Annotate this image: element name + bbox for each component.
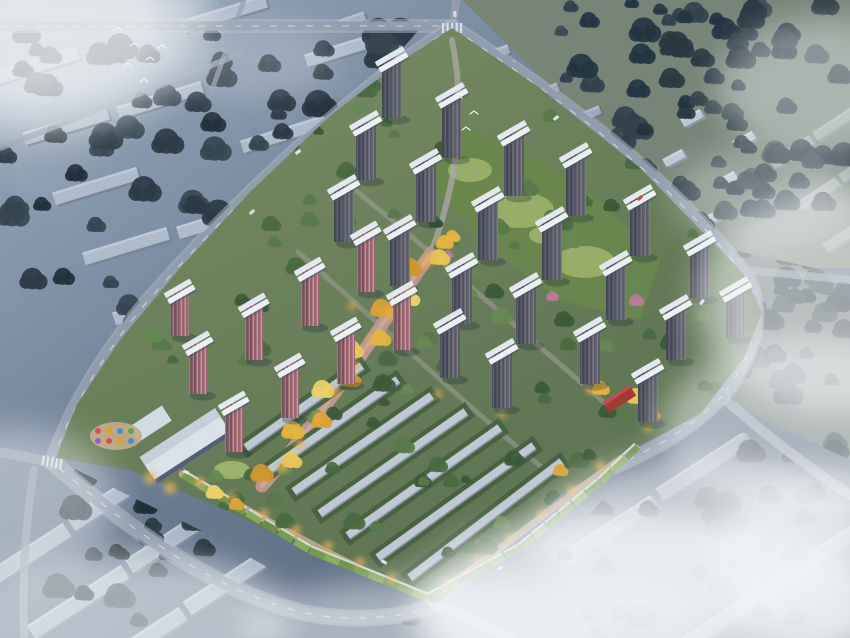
aerial-masterplan-rendering (0, 0, 850, 638)
color-tint-overlay (0, 0, 850, 638)
rendering-canvas (0, 0, 850, 638)
